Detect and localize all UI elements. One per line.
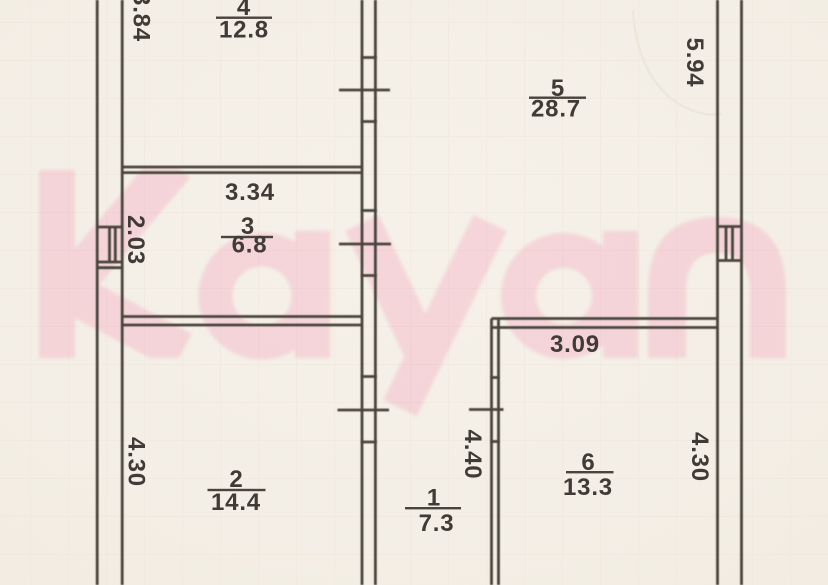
svg-text:4.40: 4.40 [459, 430, 486, 480]
svg-text:28.7: 28.7 [531, 96, 581, 123]
svg-text:2.03: 2.03 [122, 215, 149, 265]
svg-text:3.09: 3.09 [550, 331, 600, 358]
svg-text:12.8: 12.8 [219, 17, 269, 44]
svg-text:3.34: 3.34 [225, 179, 275, 206]
svg-text:5.94: 5.94 [681, 38, 708, 88]
svg-text:7.3: 7.3 [419, 510, 455, 537]
svg-text:14.4: 14.4 [211, 489, 261, 516]
svg-text:13.3: 13.3 [563, 474, 613, 501]
svg-text:3.84: 3.84 [128, 0, 155, 42]
svg-text:4.30: 4.30 [686, 432, 713, 482]
svg-text:6.8: 6.8 [232, 232, 268, 259]
svg-text:4.30: 4.30 [123, 437, 150, 487]
